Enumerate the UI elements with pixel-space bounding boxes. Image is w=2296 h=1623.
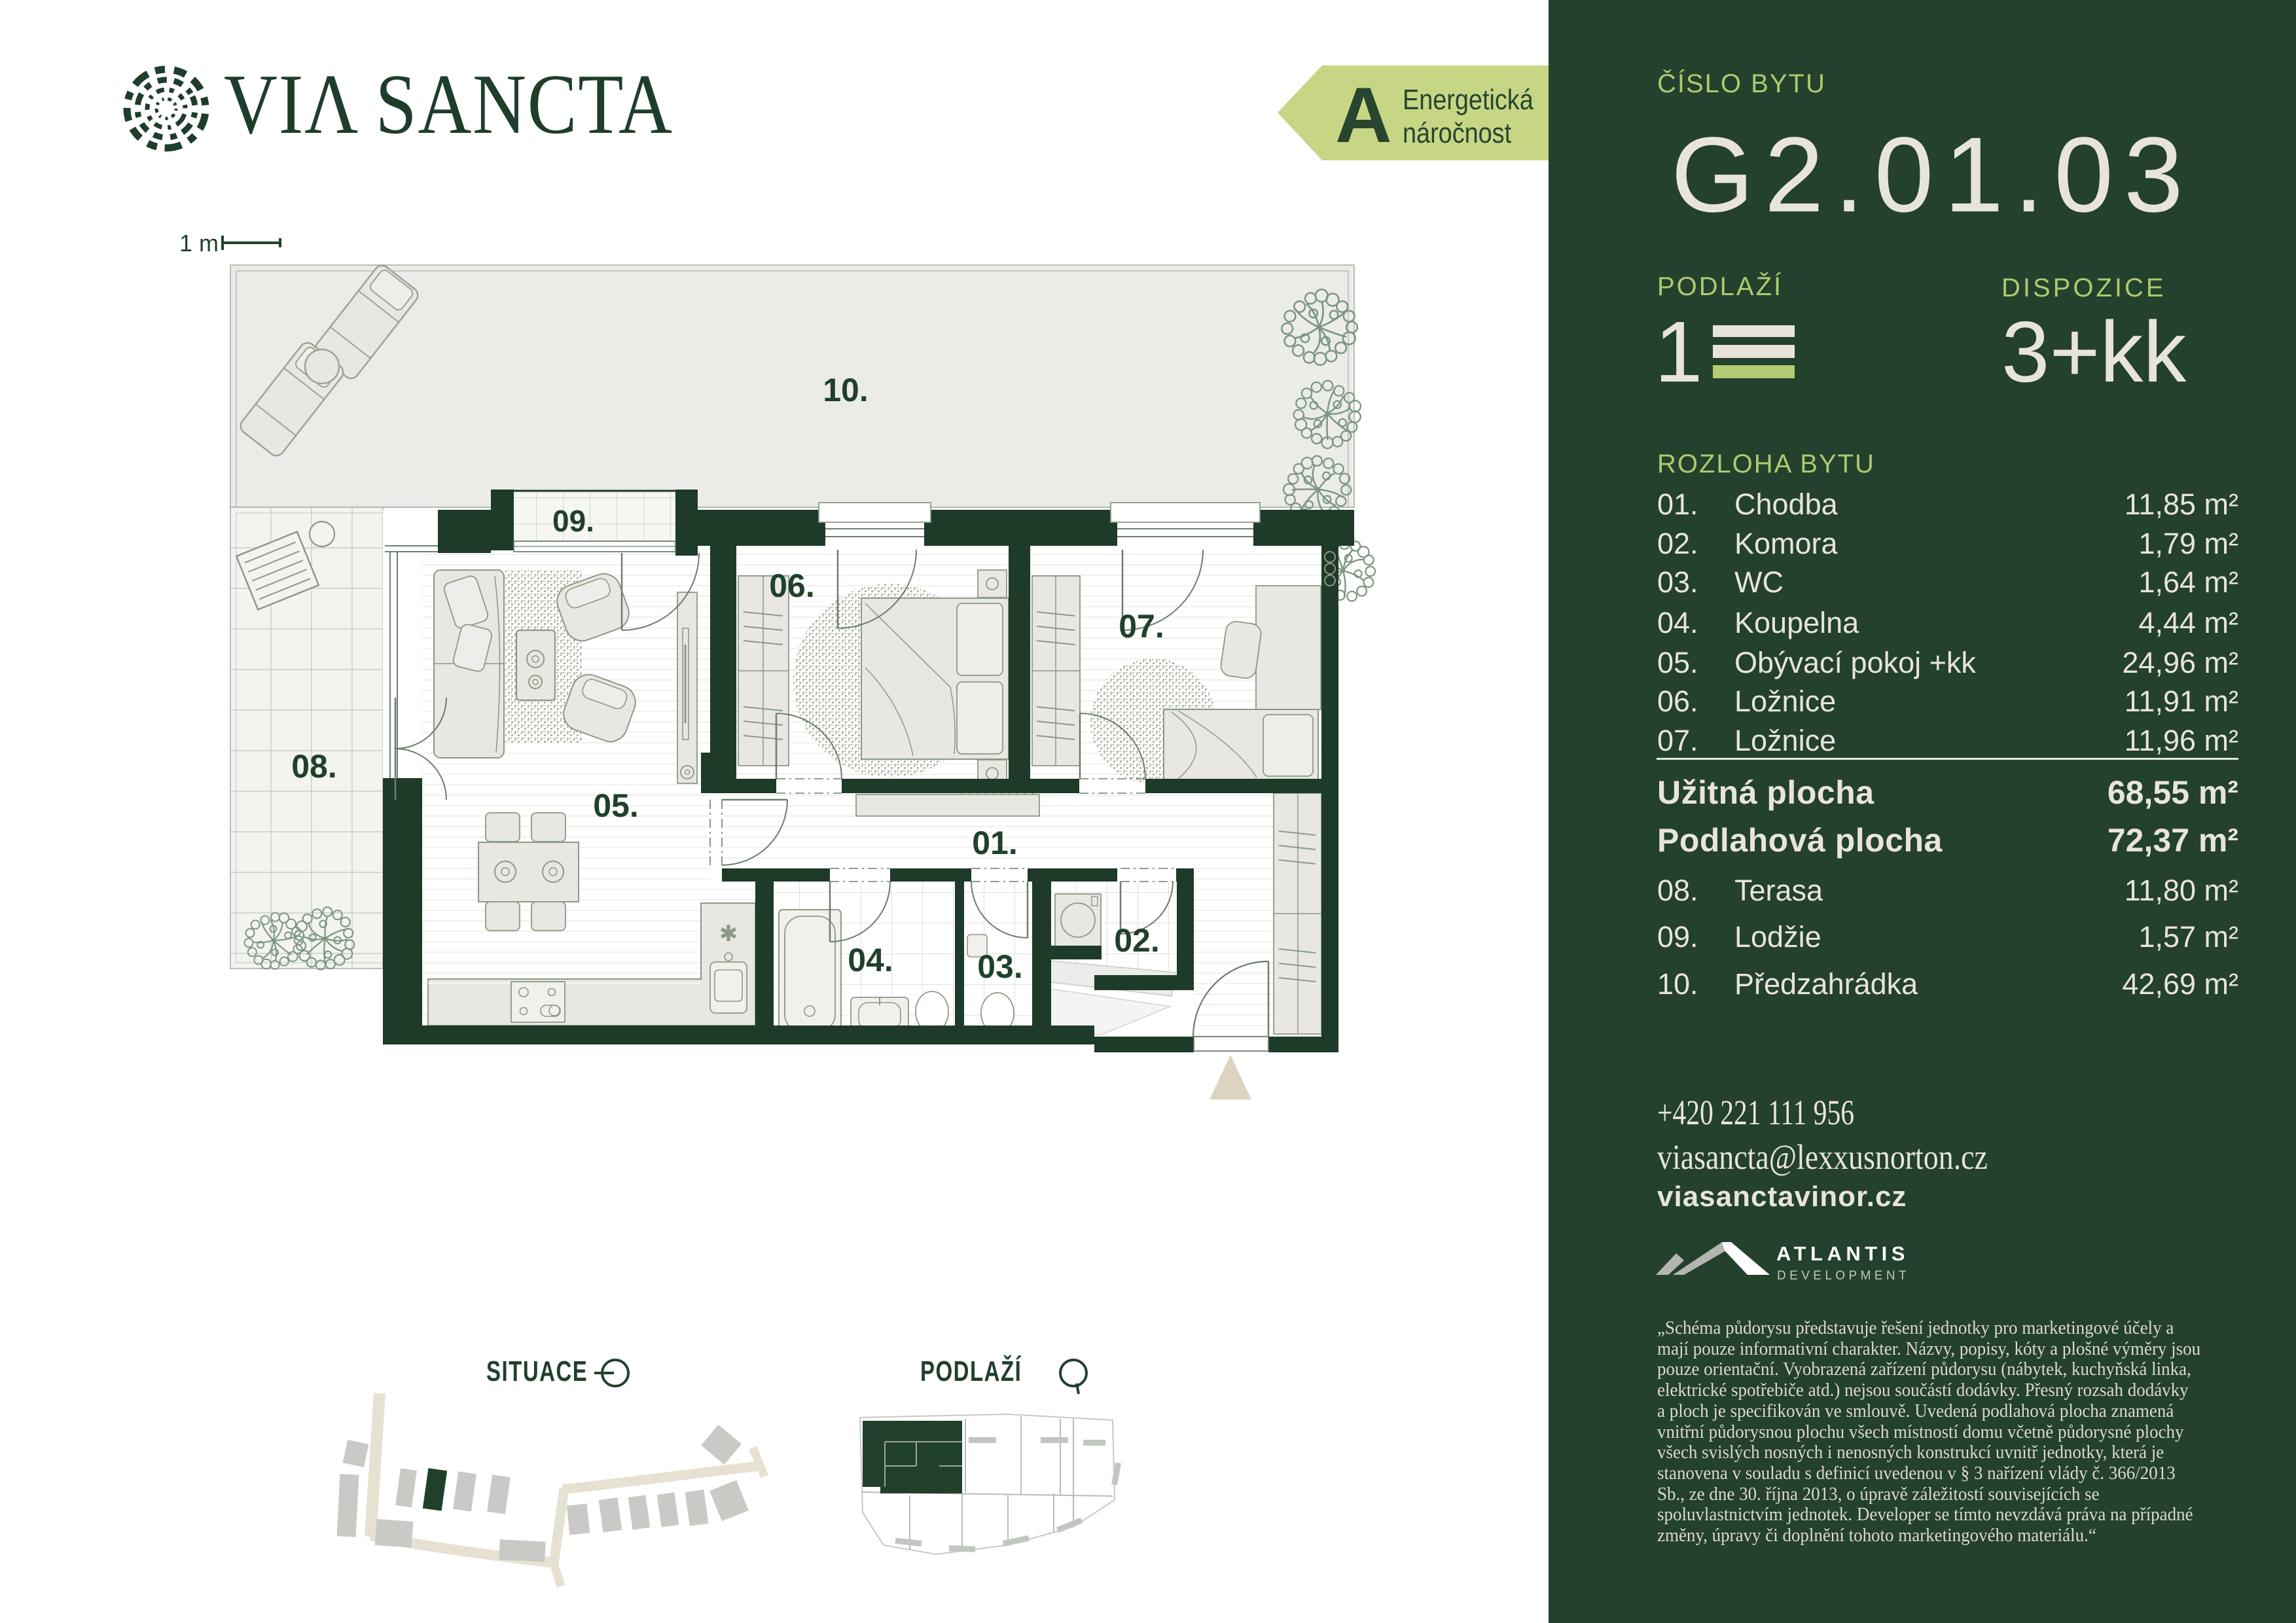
svg-text:02.: 02. [1114, 922, 1160, 959]
svg-text:PODLAŽÍ: PODLAŽÍ [920, 1355, 1022, 1387]
svg-text:03.: 03. [977, 948, 1023, 985]
svg-text:01.: 01. [972, 825, 1018, 861]
svg-text:04.: 04. [848, 942, 893, 978]
svg-text:10.: 10. [823, 372, 869, 408]
svg-text:05.: 05. [593, 787, 639, 824]
svg-text:08.: 08. [291, 748, 337, 785]
svg-text:1 m: 1 m [179, 230, 219, 257]
svg-text:SITUACE: SITUACE [486, 1356, 588, 1388]
svg-text:✱: ✱ [719, 921, 738, 946]
svg-text:06.: 06. [769, 567, 815, 604]
svg-text:09.: 09. [552, 504, 594, 538]
svg-text:07.: 07. [1119, 608, 1164, 645]
